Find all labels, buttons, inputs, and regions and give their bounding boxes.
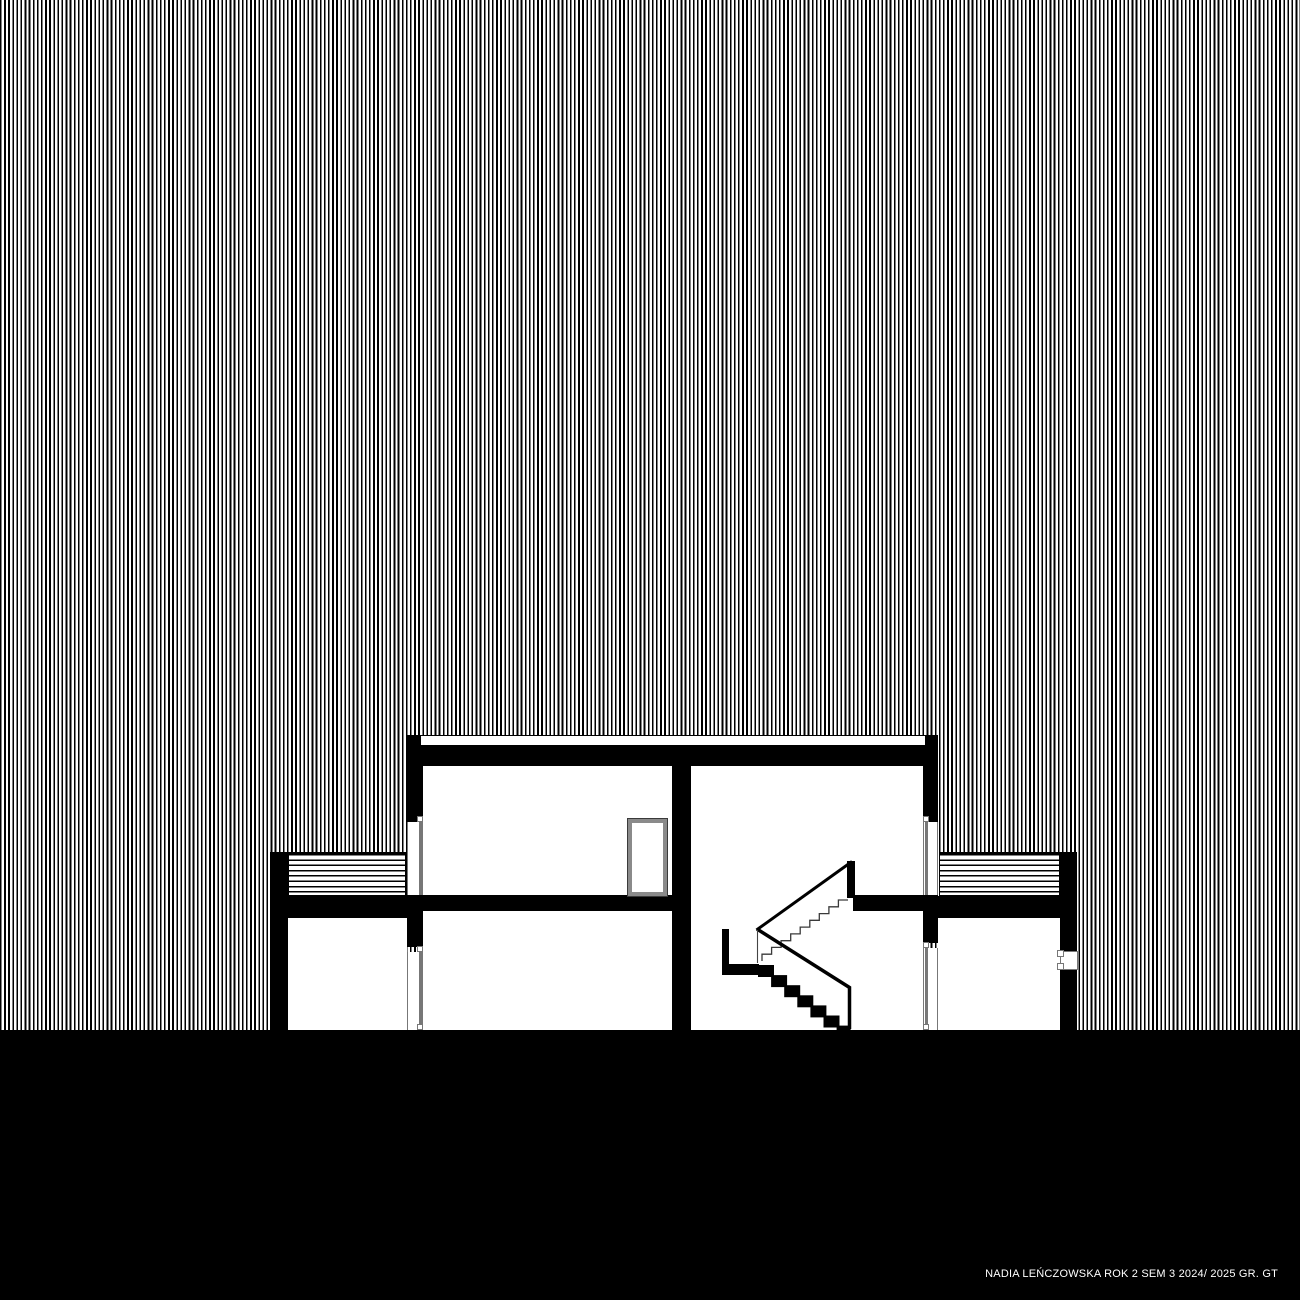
left-wing-roof-slab (270, 896, 423, 918)
left-wall-spandrel (407, 911, 423, 947)
right-wing-window-frame-bottom (1057, 963, 1064, 970)
ground-right-window (923, 948, 938, 1030)
right-wall-upper (923, 766, 938, 822)
upper-left-window-sill (417, 816, 423, 822)
upper-left-window-glazing (419, 822, 422, 895)
ground-left-window-glazing (419, 952, 422, 1030)
left-wall-upper (407, 766, 423, 822)
upper-floor-door (628, 819, 667, 896)
right-wing-outer-wall (1060, 852, 1077, 1030)
ground-left-room (423, 911, 672, 1030)
left-wing-room (288, 918, 407, 1030)
right-wing-roof-deck (939, 852, 1060, 896)
ground-right-window-sill-top (923, 942, 929, 948)
upper-right-window (923, 822, 938, 895)
floor-slab-right (853, 895, 938, 911)
ground-left-window-sill-bottom (417, 1024, 423, 1030)
ground-left-window-sill-top (417, 946, 423, 952)
upper-right-room (691, 766, 923, 895)
ground-left-window (407, 952, 423, 1030)
ground-right-room (691, 911, 923, 1030)
ground-right-window-glazing (925, 948, 928, 1030)
ground-mass (0, 1030, 1300, 1300)
title-block-text: NADIA LEŃCZOWSKA ROK 2 SEM 3 2024/ 2025 … (985, 1268, 1278, 1280)
upper-right-window-sill (923, 816, 929, 822)
left-wing-roof-deck (288, 852, 406, 896)
floor-slab-left (407, 895, 691, 911)
right-wing-window-frame-top (1057, 950, 1064, 957)
right-wing-roof-slab (923, 896, 1076, 918)
upper-left-window (407, 822, 423, 895)
left-wing-outer-wall (270, 852, 288, 1030)
architectural-section-sheet: NADIA LEŃCZOWSKA ROK 2 SEM 3 2024/ 2025 … (0, 0, 1300, 1300)
ground-right-window-sill-bottom (923, 1024, 929, 1030)
right-wall-spandrel (923, 911, 938, 943)
roof-slab (407, 745, 938, 766)
upper-right-window-glazing (925, 822, 928, 895)
right-wing-room (938, 918, 1060, 1030)
